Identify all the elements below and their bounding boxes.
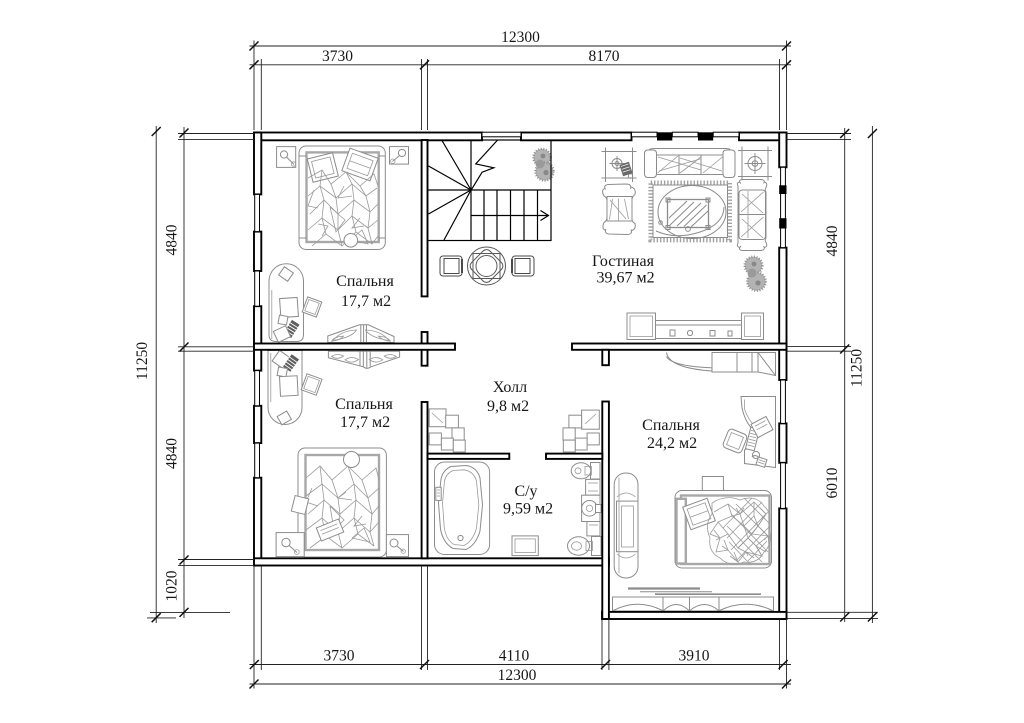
svg-text:3910: 3910 [679, 648, 710, 665]
svg-text:17,7 м2: 17,7 м2 [341, 293, 391, 310]
svg-text:1020: 1020 [164, 570, 181, 601]
svg-text:9,59 м2: 9,59 м2 [503, 501, 553, 518]
svg-text:4110: 4110 [499, 648, 530, 665]
svg-text:6010: 6010 [824, 467, 841, 498]
svg-text:12300: 12300 [498, 667, 537, 684]
svg-text:Спальня: Спальня [335, 396, 393, 413]
svg-text:Холл: Холл [493, 379, 527, 396]
svg-text:4840: 4840 [824, 225, 841, 256]
svg-text:17,7 м2: 17,7 м2 [340, 414, 390, 431]
svg-text:4840: 4840 [164, 438, 181, 469]
svg-text:4840: 4840 [164, 224, 181, 255]
svg-text:Гостиная: Гостиная [592, 253, 655, 270]
svg-text:24,2 м2: 24,2 м2 [647, 435, 697, 452]
svg-text:Спальня: Спальня [642, 417, 700, 434]
svg-text:Спальня: Спальня [336, 273, 394, 290]
svg-text:11250: 11250 [849, 349, 866, 387]
svg-text:39,67 м2: 39,67 м2 [596, 270, 654, 287]
svg-text:12300: 12300 [501, 29, 540, 46]
svg-text:11250: 11250 [134, 342, 151, 380]
svg-text:3730: 3730 [322, 48, 353, 65]
svg-text:С/у: С/у [514, 483, 537, 500]
svg-text:3730: 3730 [324, 648, 355, 665]
svg-text:8170: 8170 [589, 48, 620, 65]
svg-text:9,8 м2: 9,8 м2 [487, 398, 529, 415]
